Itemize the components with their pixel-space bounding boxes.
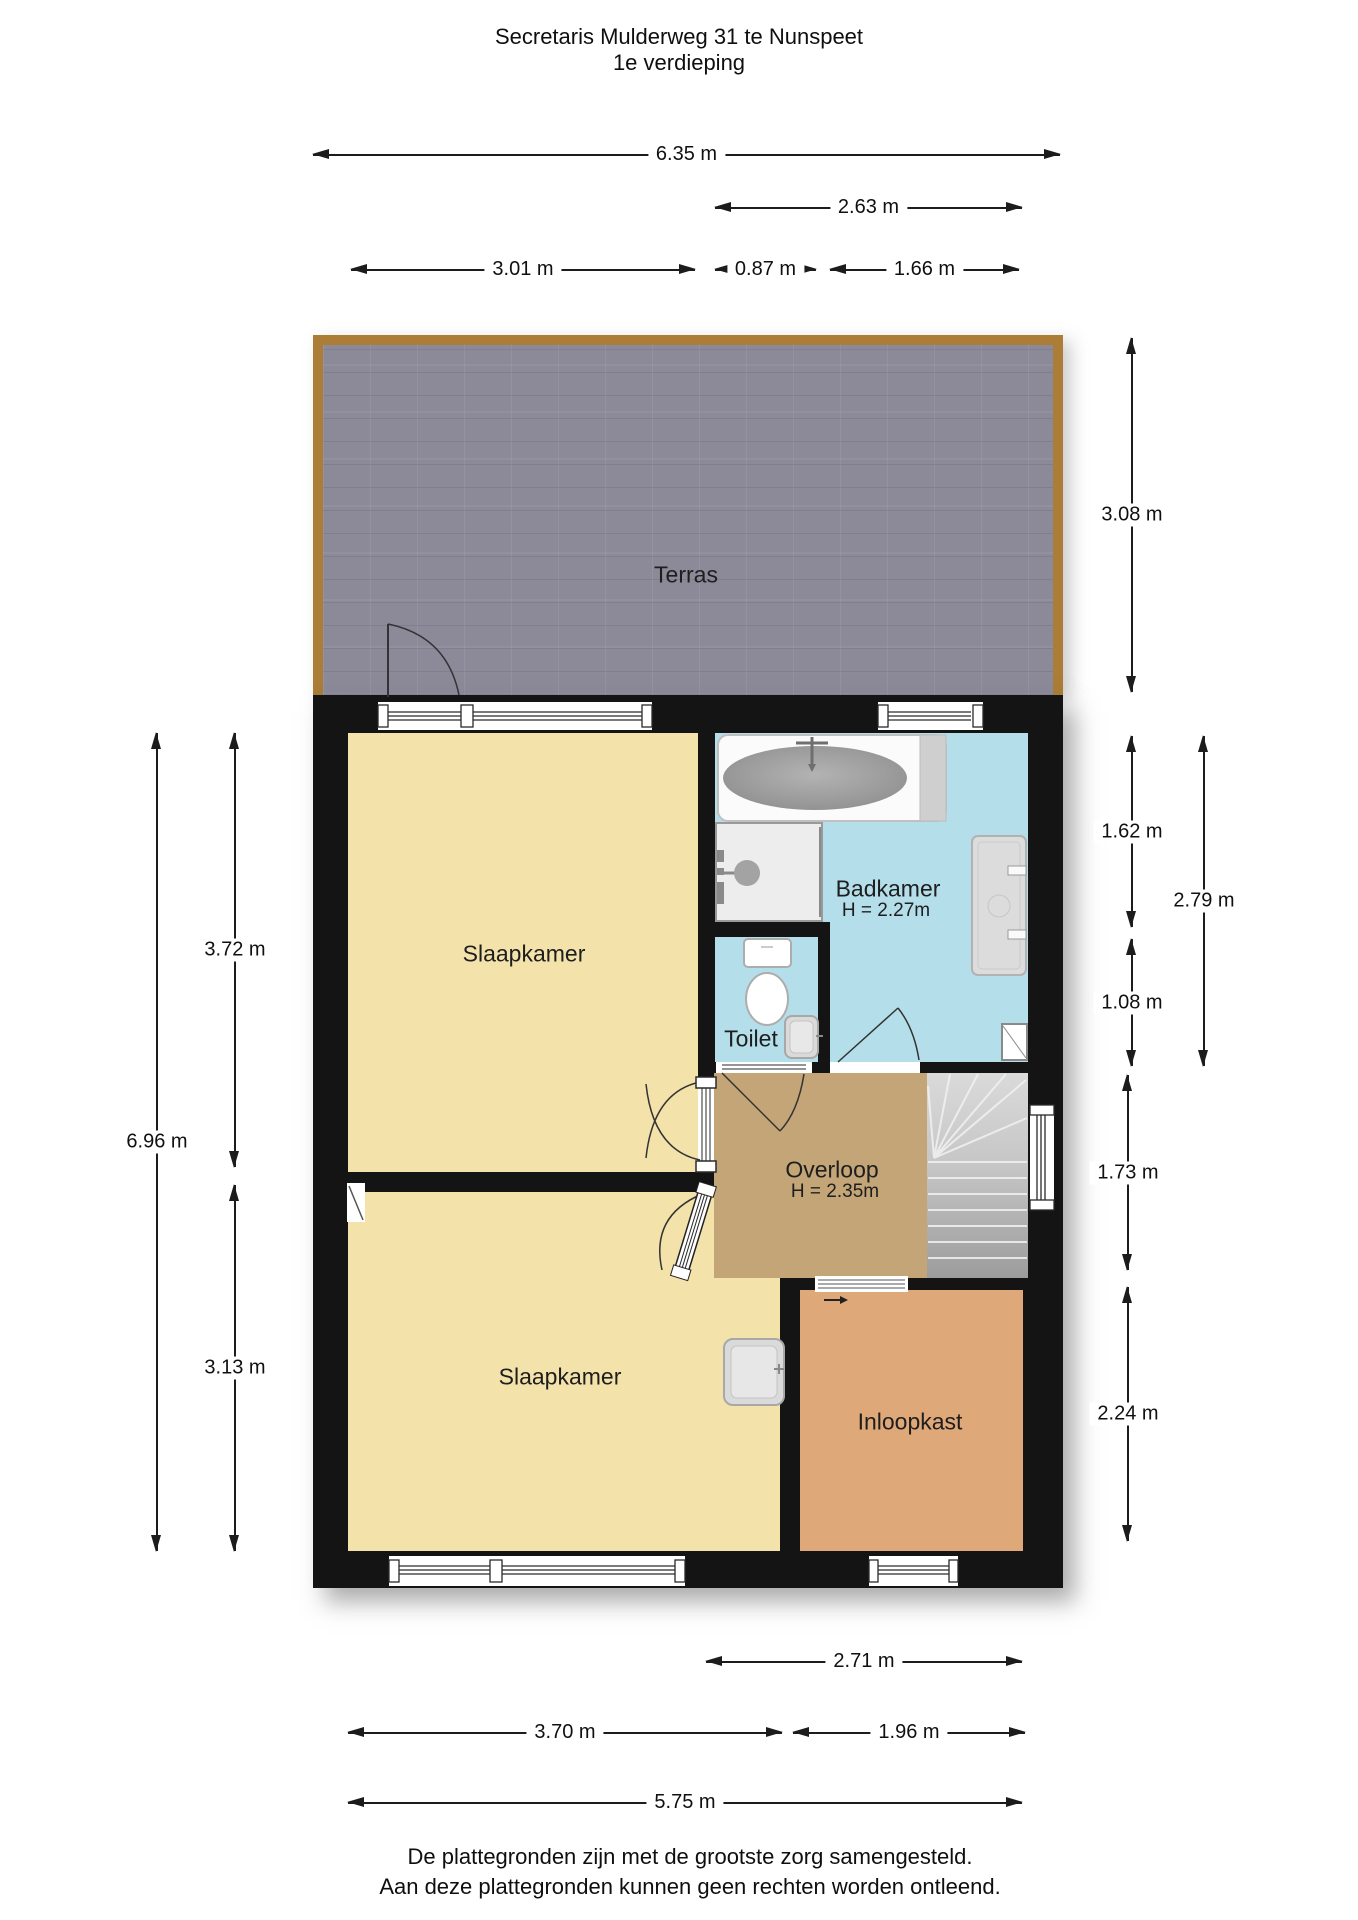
dim-total-width-label: 6.35 m	[648, 143, 725, 166]
dim-building-depth-label: 6.96 m	[118, 1131, 195, 1154]
dim-interior-width-label: 5.75 m	[646, 1791, 723, 1814]
dim-bath-total-depth-label: 2.79 m	[1165, 890, 1242, 913]
overloop-height-label: H = 2.35m	[791, 1181, 879, 1203]
dim-bath-width-label: 1.66 m	[886, 258, 963, 281]
wall-toilet-top	[715, 922, 830, 937]
window-terras-door-band	[378, 702, 652, 730]
door-badkamer-opening	[830, 1062, 920, 1073]
page-title: Secretaris Mulderweg 31 te Nunspeet	[0, 24, 1358, 50]
dim-terras-depth-label: 3.08 m	[1093, 504, 1170, 527]
wall-niche	[347, 1183, 365, 1222]
badkamer-height-label: H = 2.27m	[842, 900, 930, 922]
window-overloop-right	[1030, 1105, 1054, 1210]
disclaimer-line-1: De plattegronden zijn met de grootste zo…	[40, 1844, 1340, 1870]
inloopkast-label: Inloopkast	[858, 1409, 963, 1436]
slaapkamer-top-label: Slaapkamer	[463, 941, 586, 968]
dim-toilet-depth-label: 1.08 m	[1093, 991, 1170, 1014]
dim-bedroom-top-width-label: 3.01 m	[484, 258, 561, 281]
dim-bath-upper-depth-label: 1.62 m	[1093, 820, 1170, 843]
page-subtitle: 1e verdieping	[0, 50, 1358, 76]
window-inloopkast	[869, 1556, 958, 1586]
dim-closet-zone-width-label: 2.71 m	[825, 1650, 902, 1673]
floorplan-page: Secretaris Mulderweg 31 te Nunspeet 1e v…	[0, 0, 1358, 1920]
dim-inloopkast-depth-label: 2.24 m	[1089, 1403, 1166, 1426]
wall-toilet-right	[818, 937, 830, 1073]
terras-deck	[313, 335, 1063, 695]
dim-bedroom-top-depth-label: 3.72 m	[196, 939, 273, 962]
dim-bedroom-bottom-depth-label: 3.13 m	[196, 1357, 273, 1380]
door-inloopkast-opening	[815, 1276, 908, 1292]
slaapkamer-bottom-label: Slaapkamer	[499, 1364, 622, 1391]
door-slaapkamer-top	[698, 1077, 714, 1172]
window-slaapkamer-bottom	[389, 1556, 685, 1586]
overloop-label: Overloop	[785, 1157, 878, 1184]
toilet-label: Toilet	[724, 1026, 778, 1053]
dim-bedroom-bottom-width-label: 3.70 m	[526, 1721, 603, 1744]
window-badkamer	[878, 702, 983, 730]
dim-overloop-depth-label: 1.73 m	[1089, 1161, 1166, 1184]
dim-shower-width-label: 0.87 m	[727, 258, 804, 281]
dim-bathzone-width-label: 2.63 m	[830, 196, 907, 219]
dim-closet-width-label: 1.96 m	[870, 1721, 947, 1744]
shower-cabin	[715, 822, 823, 922]
door-toilet-opening	[716, 1062, 812, 1073]
staircase	[927, 1073, 1028, 1278]
disclaimer-line-2: Aan deze plattegronden kunnen geen recht…	[40, 1874, 1340, 1900]
terras-label: Terras	[654, 562, 718, 589]
badkamer-label: Badkamer	[836, 876, 941, 903]
terras-tiles	[323, 345, 1053, 695]
